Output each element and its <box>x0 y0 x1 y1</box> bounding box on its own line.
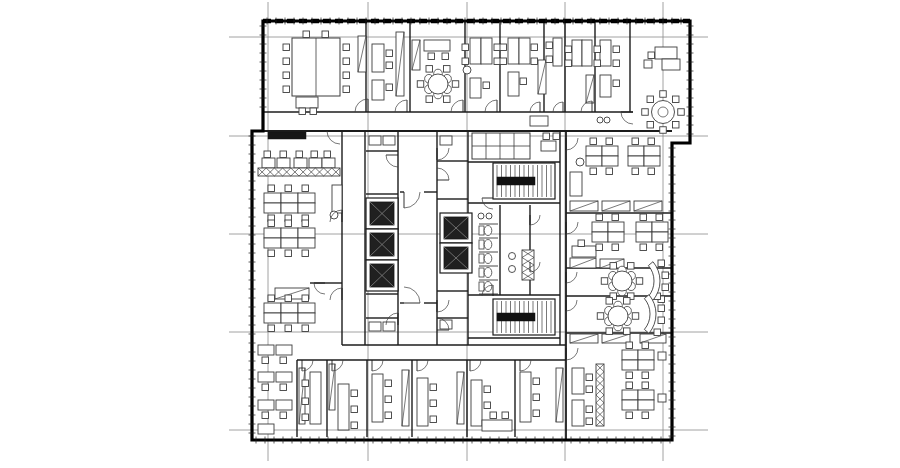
desk <box>281 313 298 323</box>
chair <box>386 84 393 91</box>
chair <box>626 342 633 349</box>
round-item <box>576 158 584 166</box>
desk <box>424 40 450 51</box>
desk <box>592 232 608 242</box>
door-arc <box>314 283 325 294</box>
desk <box>264 238 281 248</box>
chair <box>586 386 593 393</box>
toilet-bowl <box>484 226 492 236</box>
chair <box>578 240 585 247</box>
door-arc <box>566 272 577 283</box>
desk <box>652 222 668 232</box>
chair <box>452 81 459 88</box>
chair <box>586 406 593 413</box>
chair <box>268 185 275 192</box>
desk <box>586 146 602 156</box>
chair <box>642 412 649 419</box>
chair <box>642 109 649 116</box>
chair <box>626 412 633 419</box>
chair <box>658 317 665 324</box>
flower-table <box>428 74 448 94</box>
door-arc <box>404 287 420 303</box>
chair <box>285 295 292 302</box>
desk <box>298 303 315 313</box>
chair <box>444 66 451 73</box>
door-arc <box>330 288 342 300</box>
desk <box>281 203 298 213</box>
chair <box>285 185 292 192</box>
chair <box>262 357 269 364</box>
chair <box>660 91 667 98</box>
desk <box>258 372 274 382</box>
chair <box>647 121 654 128</box>
chair <box>351 406 358 413</box>
chair <box>553 133 560 140</box>
round-item <box>509 266 516 273</box>
chair <box>626 382 633 389</box>
desk <box>264 228 281 238</box>
door-arc <box>404 192 420 208</box>
chair <box>626 372 633 379</box>
chair <box>648 52 655 59</box>
desk <box>481 38 492 64</box>
chair <box>268 325 275 332</box>
desk <box>622 350 638 360</box>
desk <box>281 228 298 238</box>
chair <box>658 305 665 312</box>
chair <box>520 78 527 85</box>
desk <box>264 303 281 313</box>
chair <box>531 58 538 65</box>
desk <box>508 38 519 64</box>
chair <box>632 138 639 145</box>
desk <box>332 185 342 213</box>
chair <box>500 44 507 51</box>
chair <box>302 185 309 192</box>
chair <box>311 151 318 158</box>
chair <box>343 72 350 79</box>
chair <box>640 214 647 221</box>
chair <box>426 66 433 73</box>
desk <box>586 156 602 166</box>
desk <box>572 368 584 394</box>
chair <box>586 374 593 381</box>
toilet-tank <box>479 240 484 249</box>
door-arc <box>372 360 383 371</box>
desk <box>638 400 654 410</box>
chair <box>280 384 287 391</box>
door-arc <box>470 360 481 371</box>
chair <box>283 44 290 51</box>
chair <box>324 151 331 158</box>
chair <box>351 422 358 429</box>
chair <box>462 44 469 51</box>
desk <box>471 380 482 426</box>
chair <box>628 263 635 270</box>
chair <box>299 108 306 115</box>
chair <box>662 272 669 279</box>
door-arc <box>395 100 407 112</box>
chair <box>533 378 540 385</box>
desk <box>572 246 596 257</box>
desk <box>636 222 652 232</box>
desk <box>322 158 335 168</box>
toilet-bowl <box>484 254 492 264</box>
desk <box>602 156 618 166</box>
round-item <box>478 213 484 219</box>
chair <box>546 42 553 49</box>
desk <box>369 322 381 331</box>
chair <box>302 295 309 302</box>
toilet-bowl <box>484 240 492 250</box>
chair <box>596 214 603 221</box>
desk <box>296 97 318 108</box>
door-arc <box>437 300 449 312</box>
chair <box>462 58 469 65</box>
chair <box>285 250 292 257</box>
desk <box>276 400 292 410</box>
desk <box>372 374 383 422</box>
chair <box>442 53 449 60</box>
desk <box>482 420 512 431</box>
desk <box>372 44 384 72</box>
desk <box>276 345 292 355</box>
chair <box>490 412 497 419</box>
desk <box>298 313 315 323</box>
chair <box>612 244 619 251</box>
chair <box>262 412 269 419</box>
desk <box>600 75 611 97</box>
chair <box>632 168 639 175</box>
desk <box>658 394 666 402</box>
flower-table <box>612 271 632 291</box>
chair <box>386 50 393 57</box>
floor-plan-svg <box>0 0 900 468</box>
chair <box>386 62 393 69</box>
door-arc <box>451 100 463 112</box>
desk <box>628 146 644 156</box>
door-arc <box>621 112 633 124</box>
chair <box>444 96 451 103</box>
chair <box>426 96 433 103</box>
chair <box>647 96 654 103</box>
desk <box>592 222 608 232</box>
chair <box>565 60 572 67</box>
chair <box>624 328 631 335</box>
chair <box>606 168 613 175</box>
chair <box>502 412 509 419</box>
counter-dark <box>268 132 306 139</box>
chair <box>385 412 392 419</box>
door-arc <box>530 102 540 112</box>
toilet-tank <box>479 282 484 291</box>
desk <box>310 372 321 424</box>
round-item <box>604 117 610 123</box>
round-item <box>330 211 338 219</box>
desk <box>258 400 274 410</box>
desk <box>638 390 654 400</box>
chair <box>310 108 317 115</box>
chair <box>565 46 572 53</box>
chair <box>385 396 392 403</box>
desk <box>655 47 677 59</box>
stair-landing <box>497 177 535 185</box>
chair <box>658 260 665 267</box>
desk <box>582 40 592 66</box>
chair <box>590 168 597 175</box>
chair <box>494 58 501 65</box>
round-item <box>597 117 603 123</box>
chair <box>302 398 309 405</box>
desk <box>338 384 349 430</box>
chair <box>672 96 679 103</box>
desk <box>636 232 652 242</box>
door-arc <box>566 138 578 150</box>
desk <box>417 378 428 426</box>
chair <box>640 244 647 251</box>
chair <box>606 298 613 305</box>
chair <box>648 168 655 175</box>
desk <box>622 400 638 410</box>
round-table <box>652 101 675 124</box>
chair <box>430 384 437 391</box>
door-arc <box>485 100 497 112</box>
chair <box>594 60 601 67</box>
desk <box>298 238 315 248</box>
round-item <box>509 253 516 260</box>
desk <box>264 203 281 213</box>
desk <box>281 303 298 313</box>
chair <box>596 244 603 251</box>
round-item <box>463 66 471 74</box>
desk <box>570 172 582 196</box>
chair <box>601 278 608 285</box>
chair <box>533 410 540 417</box>
chair <box>283 58 290 65</box>
chair <box>594 46 601 53</box>
chair <box>351 390 358 397</box>
chair <box>610 263 617 270</box>
desk <box>519 38 530 64</box>
chair <box>430 416 437 423</box>
desk <box>553 38 562 66</box>
chair <box>296 151 303 158</box>
desk <box>628 156 644 166</box>
chair <box>672 121 679 128</box>
toilet-tank <box>479 268 484 277</box>
curved-bench <box>644 295 656 334</box>
desk <box>541 141 556 151</box>
cad-floor-plan-viewport <box>0 0 900 468</box>
desk <box>600 40 611 66</box>
door-arc <box>437 168 449 180</box>
chair <box>656 214 663 221</box>
chair <box>612 214 619 221</box>
desk <box>258 345 274 355</box>
desk <box>530 116 548 126</box>
door-arc <box>566 222 578 234</box>
chair <box>632 313 639 320</box>
desk <box>638 360 654 370</box>
chair <box>417 81 424 88</box>
flower-table <box>608 306 628 326</box>
desk <box>277 158 290 168</box>
chair <box>302 250 309 257</box>
desk <box>662 59 680 70</box>
chair <box>648 138 655 145</box>
toilet-tank <box>479 254 484 263</box>
chair <box>322 31 329 38</box>
chair <box>531 44 538 51</box>
chair <box>613 46 620 53</box>
chair <box>268 295 275 302</box>
chair <box>302 380 309 387</box>
desk <box>652 232 668 242</box>
desk <box>298 203 315 213</box>
door-arc <box>417 360 428 371</box>
chair <box>613 60 620 67</box>
stair-landing <box>497 313 535 321</box>
chair <box>484 402 491 409</box>
desk <box>440 320 452 329</box>
desk <box>470 38 481 64</box>
desk <box>276 372 292 382</box>
chair <box>280 357 287 364</box>
toilet-bowl <box>484 268 492 278</box>
chair <box>268 250 275 257</box>
desk <box>658 352 666 360</box>
desk <box>383 136 395 145</box>
chair <box>533 394 540 401</box>
chair <box>484 386 491 393</box>
desk <box>372 80 384 100</box>
chair <box>343 86 350 93</box>
door-arc <box>566 300 577 311</box>
chair <box>678 109 685 116</box>
chair <box>280 151 287 158</box>
desk <box>440 136 452 145</box>
hatch-band <box>522 250 534 280</box>
desk <box>298 228 315 238</box>
chair <box>642 342 649 349</box>
chair <box>283 86 290 93</box>
desk <box>262 158 275 168</box>
chair <box>283 72 290 79</box>
chair <box>662 284 669 291</box>
chair <box>343 44 350 51</box>
chair <box>343 58 350 65</box>
chair <box>303 31 310 38</box>
chair <box>606 138 613 145</box>
door-arc <box>520 360 531 371</box>
door-arc <box>530 215 540 225</box>
chair <box>285 220 292 227</box>
chair <box>428 53 435 60</box>
chair <box>546 56 553 63</box>
desk <box>281 193 298 203</box>
door-arc <box>327 131 340 144</box>
chair <box>656 244 663 251</box>
chair <box>285 325 292 332</box>
desk <box>520 372 531 422</box>
door-arc <box>553 102 563 112</box>
chair <box>302 414 309 421</box>
chair <box>268 220 275 227</box>
chair <box>597 313 604 320</box>
chair <box>264 151 271 158</box>
desk <box>572 40 582 66</box>
chair <box>280 412 287 419</box>
chair <box>606 328 613 335</box>
desk <box>602 146 618 156</box>
chair <box>642 382 649 389</box>
chair <box>262 384 269 391</box>
desk <box>508 72 519 96</box>
desk <box>608 222 624 232</box>
chair <box>500 58 507 65</box>
desk <box>264 313 281 323</box>
desk <box>572 400 584 426</box>
desk <box>264 193 281 203</box>
desk <box>470 78 481 98</box>
chair <box>385 380 392 387</box>
chair <box>302 220 309 227</box>
round-item <box>486 213 492 219</box>
desk <box>638 350 654 360</box>
desk <box>281 238 298 248</box>
desk <box>383 322 395 331</box>
door-arc <box>386 155 398 167</box>
desk <box>309 158 322 168</box>
chair <box>430 400 437 407</box>
chair <box>586 418 593 425</box>
chair <box>636 278 643 285</box>
chair <box>613 80 620 87</box>
chair <box>543 133 550 140</box>
chair <box>654 329 661 336</box>
chair <box>590 138 597 145</box>
chair <box>660 127 667 134</box>
desk <box>644 146 660 156</box>
door-arc <box>437 148 449 160</box>
desk <box>644 60 652 68</box>
toilet-tank <box>479 226 484 235</box>
desk <box>294 158 307 168</box>
door-arc <box>566 348 578 360</box>
desk <box>258 424 274 434</box>
chair <box>642 372 649 379</box>
chair <box>483 82 490 89</box>
chair <box>494 44 501 51</box>
desk <box>369 136 381 145</box>
desk <box>622 390 638 400</box>
desk <box>298 193 315 203</box>
desk <box>644 156 660 166</box>
desk <box>622 360 638 370</box>
chair <box>624 298 631 305</box>
desk <box>608 232 624 242</box>
chair <box>302 325 309 332</box>
